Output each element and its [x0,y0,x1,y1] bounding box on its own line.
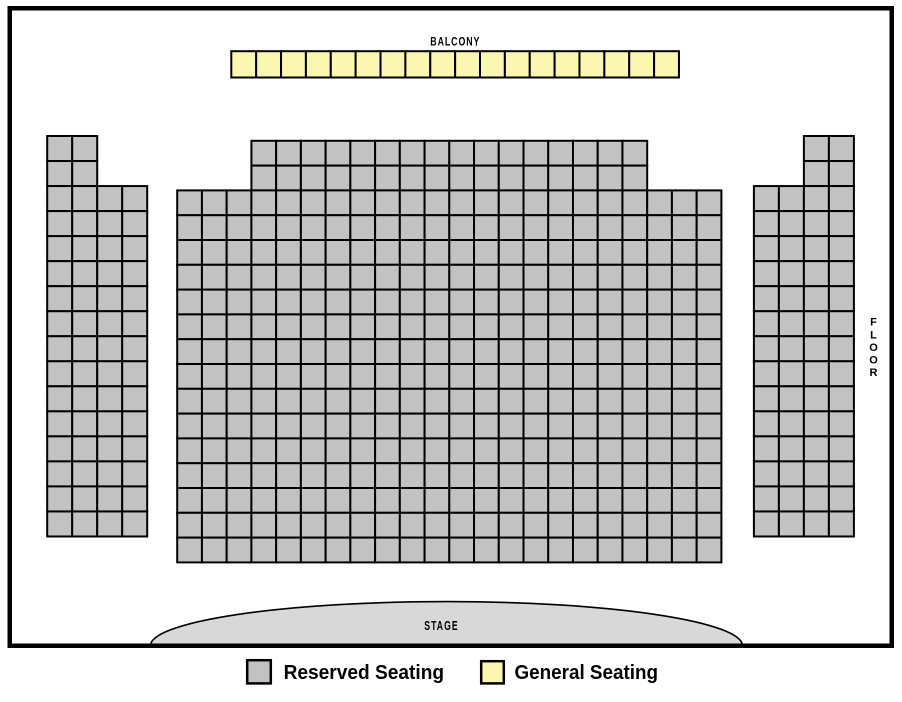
svg-text:STAGE: STAGE [424,619,459,633]
svg-text:Reserved Seating: Reserved Seating [284,661,445,684]
svg-text:F: F [870,317,877,329]
svg-text:O: O [869,355,878,367]
svg-text:L: L [870,329,877,341]
svg-text:BALCONY: BALCONY [430,37,480,49]
svg-text:O: O [869,342,878,354]
svg-text:R: R [870,367,878,379]
svg-text:General Seating: General Seating [515,661,659,684]
